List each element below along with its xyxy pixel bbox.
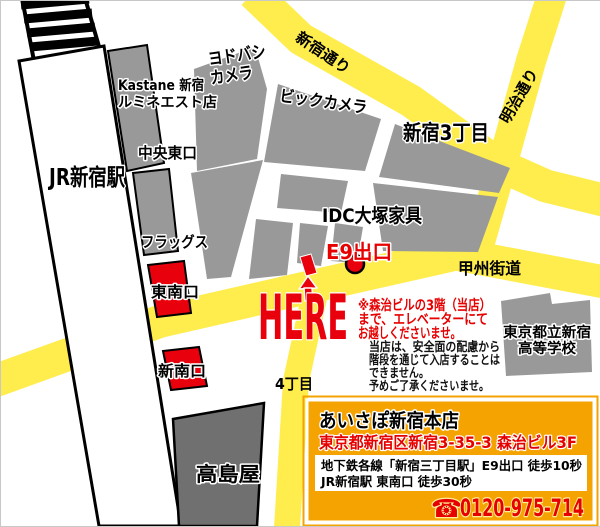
black-note-line4: 予めご了承くださいませ。 [369, 378, 489, 393]
school-label-line1: 東京都立新宿 [503, 324, 591, 341]
shinjuku-access-map: JR新宿駅 Kastane 新宿 ルミネエスト店 中央東口 フラッグス 東南口 … [1, 1, 600, 526]
southeast-exit-label: 東南口 [151, 283, 199, 301]
map-canvas: JR新宿駅 Kastane 新宿 ルミネエスト店 中央東口 フラッグス 東南口 … [0, 0, 600, 527]
kastane-label-line2: ルミネエスト店 [118, 94, 217, 111]
jr-station-label: JR新宿駅 [47, 164, 125, 191]
idc-otsuka-label: IDC大塚家具 [322, 204, 422, 227]
new-south-exit-label: 新南口 [158, 362, 206, 380]
block-mid-2 [249, 219, 293, 279]
shop-title: あいさぽ新宿本店 [319, 409, 459, 432]
school-label-line2: 高等学校 [518, 340, 577, 357]
chuo-east-exit-label: 中央東口 [138, 144, 197, 162]
kastane-label-line1: Kastane 新宿 [118, 77, 204, 94]
access-line1: 地下鉄各線「新宿三丁目駅」E9出口 徒歩10秒 [321, 458, 582, 473]
shop-info-box: あいさぽ新宿本店 東京都新宿区新宿3-35-3 森治ビル3F 地下鉄各線「新宿三… [304, 397, 598, 526]
e9-exit-label: E9出口 [326, 240, 392, 264]
access-line2: JR新宿駅 東南口 徒歩30秒 [320, 474, 472, 489]
here-label: HERE [258, 281, 348, 354]
koshu-kaido-label: 甲州街道 [458, 259, 521, 278]
phone-number: 0120-975-714 [460, 494, 584, 522]
red-note: ※森治ビルの3階（当店） まで、エレベーターにて お越しくださいませ。 [358, 297, 491, 342]
flags-label: フラッグス [141, 233, 208, 251]
black-note: 当店は、安全面の配慮から 階段を通じて入店することは できません。 予めご了承く… [369, 339, 500, 393]
takashimaya-label: 高島屋 [196, 462, 260, 486]
phone-icon: ☎ [431, 494, 462, 523]
yonchome-label: 4丁目 [275, 375, 313, 393]
sanchome-label: 新宿3丁目 [403, 121, 489, 145]
shop-address: 東京都新宿区新宿3-35-3 森治ビル3F [319, 433, 577, 452]
